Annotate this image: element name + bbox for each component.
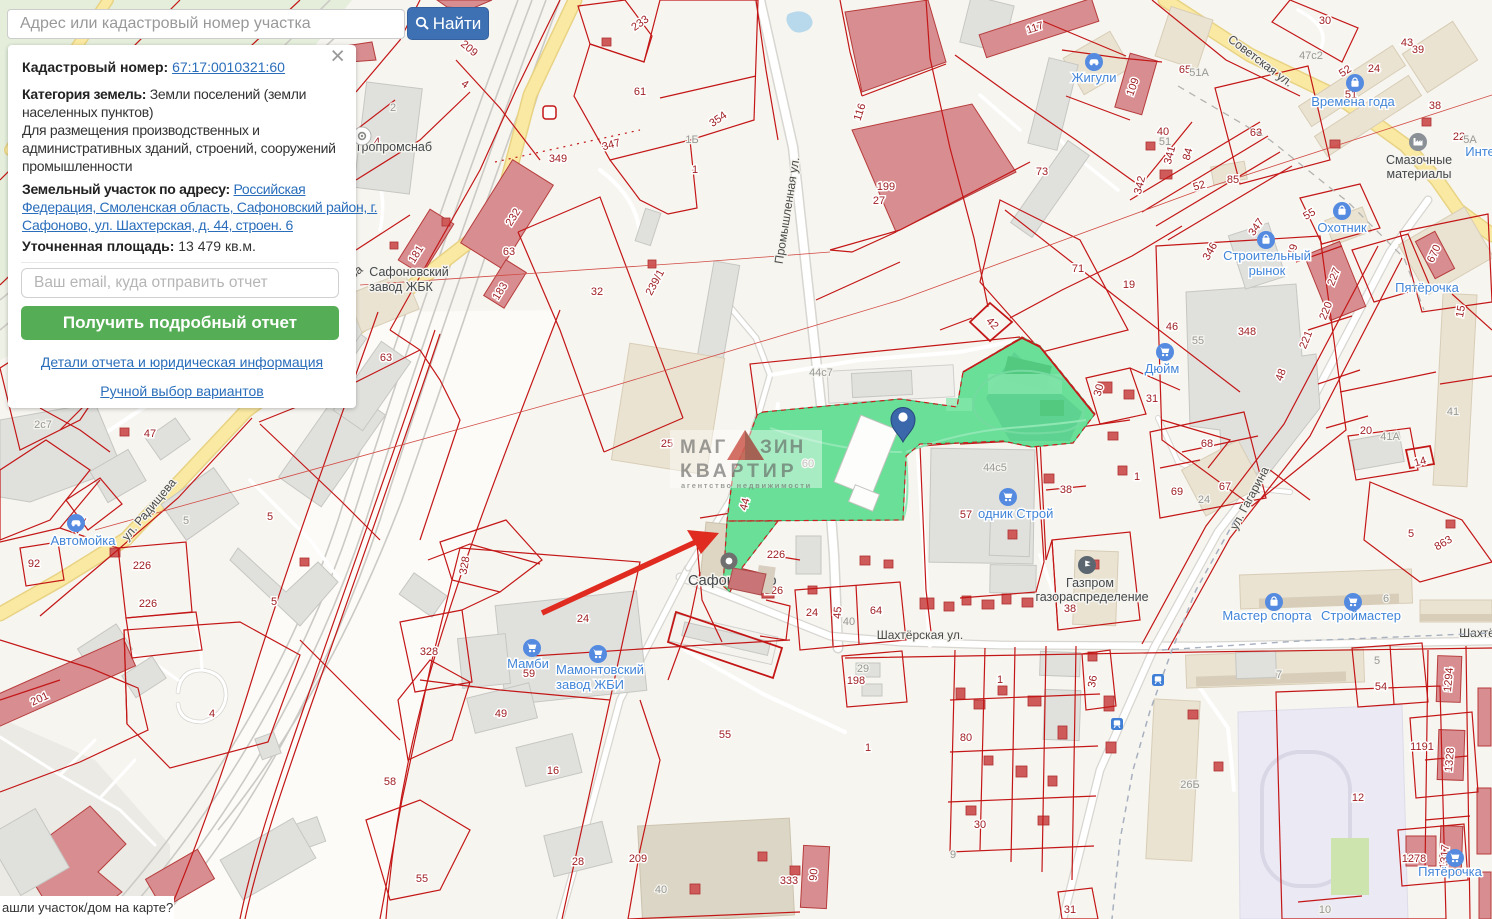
svg-text:1: 1 [692,164,698,176]
svg-text:Мамби: Мамби [507,656,549,671]
svg-text:5: 5 [183,515,189,527]
svg-text:Инте: Инте [1465,144,1492,159]
svg-text:КВАРТИР: КВАРТИР [680,460,797,482]
svg-text:2с7: 2с7 [34,419,52,431]
svg-text:Шахтёрская ул.: Шахтёрская ул. [877,628,963,642]
svg-text:28: 28 [572,856,584,868]
svg-text:26Б: 26Б [1180,779,1199,791]
svg-text:15: 15 [1454,304,1468,318]
svg-text:226: 226 [767,549,785,561]
svg-text:90: 90 [808,868,821,881]
svg-text:Автомойка: Автомойка [51,533,117,548]
svg-text:9: 9 [950,849,956,861]
svg-text:64: 64 [870,605,882,617]
svg-text:47: 47 [144,428,156,440]
svg-text:Мастер спорта: Мастер спорта [1222,608,1312,623]
svg-text:40: 40 [655,884,667,896]
svg-text:24: 24 [577,613,589,625]
svg-text:41: 41 [1447,406,1459,418]
svg-text:29: 29 [857,663,869,675]
svg-text:58: 58 [384,776,396,788]
svg-text:61: 61 [634,86,646,98]
svg-text:Жигули: Жигули [1071,70,1116,85]
svg-text:46: 46 [1166,321,1178,333]
svg-text:47с2: 47с2 [1299,50,1323,62]
svg-text:12: 12 [1352,792,1364,804]
svg-text:газораспределение: газораспределение [1035,590,1148,604]
svg-text:материалы: материалы [1387,167,1452,181]
svg-text:43: 43 [1401,37,1413,49]
svg-text:209: 209 [629,853,647,865]
svg-text:16: 16 [547,765,559,777]
svg-text:1: 1 [865,742,871,754]
svg-text:73: 73 [1036,166,1048,178]
svg-text:67: 67 [1219,481,1231,493]
svg-text:54: 54 [1375,681,1387,693]
svg-text:55: 55 [719,729,731,741]
svg-text:41А: 41А [1380,431,1400,443]
svg-text:30: 30 [1319,15,1331,27]
svg-text:198: 198 [847,675,865,687]
svg-text:85: 85 [1227,174,1239,186]
svg-text:51: 51 [1159,136,1171,148]
svg-text:24: 24 [1198,494,1210,506]
svg-text:226: 226 [133,560,151,572]
svg-text:1294: 1294 [1442,667,1456,692]
svg-text:31: 31 [1146,393,1158,405]
svg-text:69: 69 [1171,486,1183,498]
svg-text:Газпром: Газпром [1066,576,1114,590]
svg-text:5: 5 [1408,528,1414,540]
svg-text:Дюйм: Дюйм [1145,361,1180,376]
svg-text:одник Строй: одник Строй [978,506,1053,521]
svg-text:63: 63 [503,246,515,258]
svg-text:Пятёрочка: Пятёрочка [1418,864,1482,879]
svg-text:20: 20 [1360,425,1372,437]
svg-text:Охотник: Охотник [1317,220,1367,235]
svg-text:348: 348 [1238,326,1256,338]
svg-text:39: 39 [1412,44,1424,56]
svg-text:40: 40 [843,616,855,628]
svg-text:1Б: 1Б [685,134,698,146]
svg-text:44с7: 44с7 [809,367,833,379]
svg-text:Строительный: Строительный [1223,248,1311,263]
svg-text:2: 2 [390,102,396,114]
svg-text:38: 38 [1429,100,1441,112]
svg-text:Сафоновский: Сафоновский [369,265,448,279]
svg-text:349: 349 [549,153,567,165]
svg-text:10: 10 [1319,904,1331,916]
svg-text:5: 5 [1374,655,1380,667]
svg-text:36: 36 [1086,674,1100,688]
svg-text:Строймастер: Строймастер [1321,608,1401,623]
svg-text:24: 24 [806,607,818,619]
svg-text:ЗИН: ЗИН [760,437,805,458]
svg-text:Пятёрочка: Пятёрочка [1395,280,1459,295]
svg-text:38: 38 [1060,484,1072,496]
svg-text:1: 1 [1134,471,1140,483]
svg-text:1191: 1191 [1410,741,1434,753]
svg-text:71: 71 [1072,263,1084,275]
svg-text:333: 333 [780,875,798,887]
svg-text:55: 55 [416,873,428,885]
svg-text:38: 38 [1064,603,1076,615]
svg-text:5: 5 [267,511,273,523]
svg-text:завод ЖБИ: завод ЖБИ [556,677,624,692]
svg-text:6: 6 [1383,593,1389,605]
svg-text:44с5: 44с5 [983,462,1007,474]
svg-text:5: 5 [271,596,277,608]
svg-text:63: 63 [1250,127,1262,139]
svg-text:199: 199 [877,181,895,193]
svg-text:7: 7 [1276,669,1282,681]
svg-text:80: 80 [960,732,972,744]
svg-text:Времена года: Времена года [1311,94,1395,109]
svg-text:4: 4 [209,708,215,720]
svg-text:Смазочные: Смазочные [1386,153,1452,167]
svg-text:49: 49 [495,708,507,720]
svg-text:Шахтё: Шахтё [1459,626,1492,640]
svg-text:завод ЖБК: завод ЖБК [369,280,433,294]
svg-text:агентство недвижимости: агентство недвижимости [681,481,812,490]
svg-text:57: 57 [960,509,972,521]
svg-text:24: 24 [1368,63,1380,75]
svg-text:63: 63 [380,352,392,364]
svg-text:1328: 1328 [1443,747,1457,772]
svg-text:Мамонтовский: Мамонтовский [556,662,644,677]
svg-text:51А: 51А [1189,67,1209,79]
svg-text:31: 31 [1064,904,1076,916]
svg-text:рынок: рынок [1249,263,1286,278]
svg-text:МАГ: МАГ [680,437,728,458]
svg-text:27: 27 [873,195,885,207]
svg-text:226: 226 [139,598,157,610]
svg-text:1: 1 [997,674,1003,686]
svg-text:55: 55 [1192,335,1204,347]
svg-text:92: 92 [28,558,40,570]
svg-text:68: 68 [1201,438,1213,450]
svg-text:32: 32 [591,286,603,298]
svg-text:30: 30 [974,819,986,831]
svg-text:328: 328 [420,646,438,658]
svg-text:19: 19 [1123,279,1135,291]
